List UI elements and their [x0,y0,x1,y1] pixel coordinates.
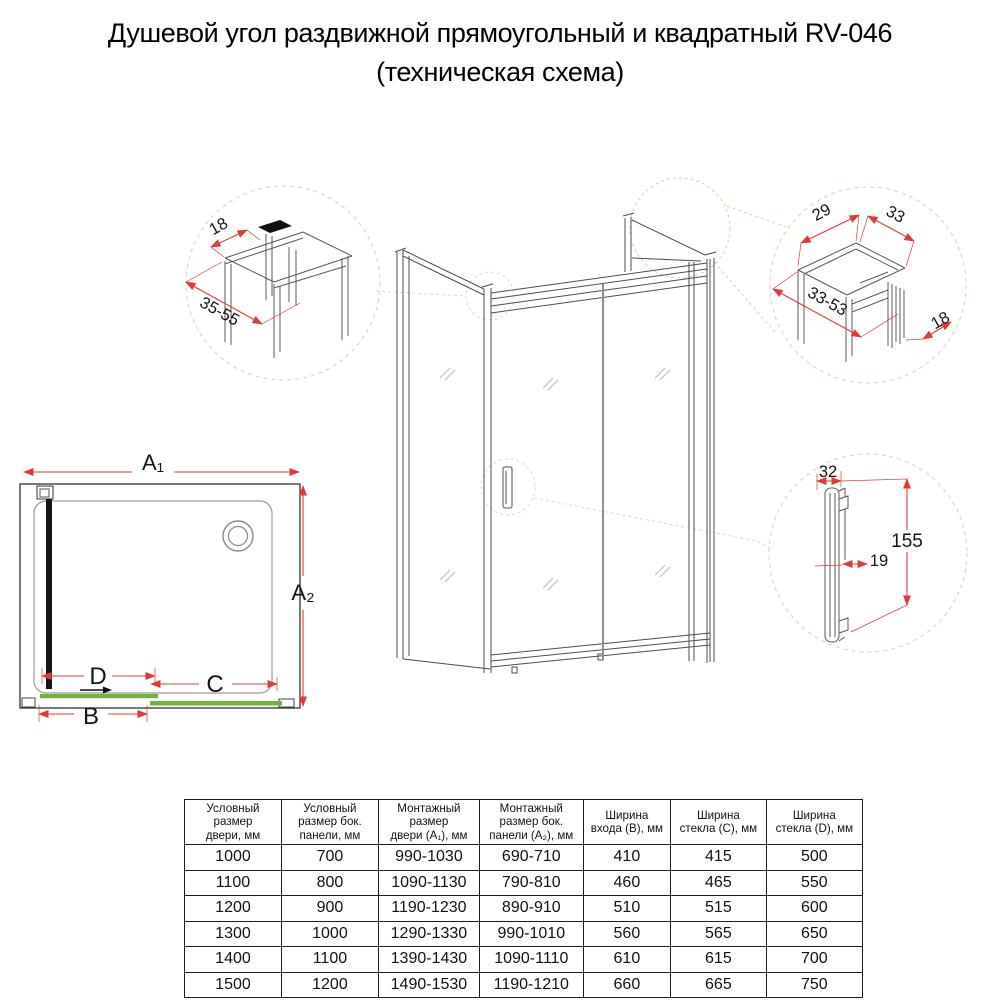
detail-circle-wall-profile [186,186,380,380]
plan-view [20,484,300,708]
table-row: 1000 700 990-1030 690-710 410 415 500 [185,845,863,871]
table-cell: 560 [583,921,670,947]
table-cell: 410 [583,845,670,871]
col-header-glass-d: Ширина стекла (D), мм [766,800,862,845]
table-cell: 600 [766,896,862,922]
dim-label-35-55: 35-55 [197,294,243,330]
wall-bracket-bottom-left [22,698,35,707]
table-cell: 1290-1330 [378,921,479,947]
dim-label-b: B [83,703,99,730]
table-cell: 565 [671,921,767,947]
leader-line-handle [534,498,770,548]
table-cell: 890-910 [479,896,583,922]
table-cell: 1200 [281,972,378,998]
table-cell: 1200 [185,896,282,922]
table-cell: 515 [671,896,767,922]
dim-label-33: 33 [883,202,908,227]
table-cell: 990-1030 [378,845,479,871]
table-cell: 665 [671,972,767,998]
leader-lines-top-right [714,206,789,332]
schematic-page: Душевой угол раздвижной прямоугольный и … [0,0,1000,1000]
fixed-door-glass-c [150,701,282,706]
table-cell: 990-1010 [479,921,583,947]
table-cell: 510 [583,896,670,922]
col-header-door-nominal: Условный размер двери, мм [185,800,282,845]
table-cell: 790-810 [479,870,583,896]
col-header-side-nominal: Условный размер бок. панели, мм [281,800,378,845]
dim-label-a2: A₂ [291,580,314,605]
table-header-row: Условный размер двери, мм Условный разме… [185,800,863,845]
magnet-seal [258,220,292,233]
side-glass-panel-plan [46,499,52,689]
handle-mount-top [839,496,848,511]
table-cell: 800 [281,870,378,896]
dim-label-18-right: 18 [928,308,953,333]
size-table-wrap: Условный размер двери, мм Условный разме… [184,799,863,998]
col-header-glass-c: Ширина стекла (C), мм [671,800,767,845]
table-cell: 1190-1210 [479,972,583,998]
wall-bracket-top-inner [40,489,49,497]
handle-mount-bottom [839,618,848,633]
col-header-entry-width: Ширина входа (B), мм [583,800,670,845]
door-profile-dimensions [773,215,951,340]
dim-label-a1: A₁ [142,450,164,475]
size-table: Условный размер двери, мм Условный разме… [184,799,863,998]
dim-label-d: D [89,663,106,690]
table-row: 1400 1100 1390-1430 1090-1110 610 615 70… [185,947,863,973]
table-cell: 1400 [185,947,282,973]
callout-circle-frame-corner [466,272,514,320]
table-cell: 650 [766,921,862,947]
leader-line-left [376,291,466,296]
dim-label-19: 19 [870,552,888,570]
table-cell: 1100 [185,870,282,896]
dim-label-32: 32 [819,463,837,481]
table-cell: 1090-1130 [378,870,479,896]
table-row: 1300 1000 1290-1330 990-1010 560 565 650 [185,921,863,947]
table-row: 1200 900 1190-1230 890-910 510 515 600 [185,896,863,922]
wall-profile-sketch [225,220,352,358]
table-cell: 750 [766,972,862,998]
table-cell: 660 [583,972,670,998]
table-cell: 550 [766,870,862,896]
table-cell: 1000 [281,921,378,947]
roller [512,667,517,673]
table-cell: 700 [281,845,378,871]
table-cell: 1190-1230 [378,896,479,922]
dim-label-33-53: 33-53 [805,284,851,320]
table-cell: 460 [583,870,670,896]
dim-label-18-left: 18 [206,214,231,239]
table-row: 1500 1200 1490-1530 1190-1210 660 665 75… [185,972,863,998]
table-cell: 690-710 [479,845,583,871]
detail-circle-handle [769,454,967,652]
table-cell: 1000 [185,845,282,871]
table-cell: 610 [583,947,670,973]
table-cell: 500 [766,845,862,871]
table-cell: 615 [671,947,767,973]
col-header-door-mounting: Монтажный размер двери (А₁), мм [378,800,479,845]
table-cell: 1390-1430 [378,947,479,973]
table-cell: 700 [766,947,862,973]
table-cell: 1100 [281,947,378,973]
dim-label-155: 155 [891,531,923,552]
enclosure-3d-sketch [395,213,716,673]
table-cell: 415 [671,845,767,871]
table-cell: 1490-1530 [378,972,479,998]
plan-outer-frame [20,484,300,708]
table-cell: 900 [281,896,378,922]
door-handle-3d [503,467,512,508]
col-header-side-mounting: Монтажный размер бок. панели (А₂), мм [479,800,583,845]
table-row: 1100 800 1090-1130 790-810 460 465 550 [185,870,863,896]
dim-label-c: C [206,671,223,698]
table-cell: 465 [671,870,767,896]
table-cell: 1300 [185,921,282,947]
table-cell: 1090-1110 [479,947,583,973]
sliding-door-glass-d [40,694,158,698]
table-cell: 1500 [185,972,282,998]
